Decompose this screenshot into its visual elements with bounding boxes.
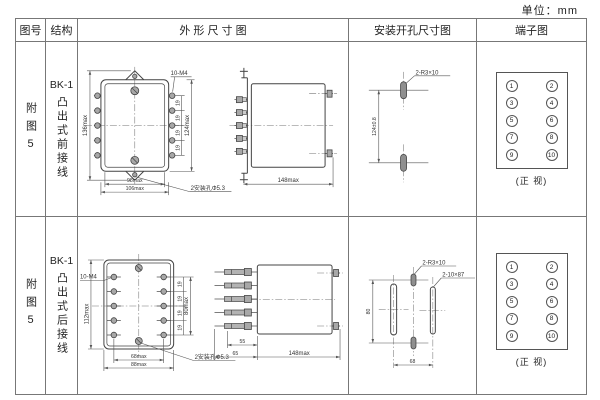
header-structure: 结构 [46, 19, 78, 42]
dim-mount-spacing-h-row2: 68 [410, 359, 416, 365]
terminal-4: 4 [546, 278, 558, 290]
header-fig: 图号 [16, 19, 46, 42]
terminal-7: 7 [506, 132, 518, 144]
terminal-left-column-row1: 1 3 5 7 9 [506, 80, 518, 161]
dim-pitch-2-row1: 19 [176, 115, 182, 121]
terminal-2: 2 [546, 80, 558, 92]
dim-depth-row2: 148max [289, 351, 310, 357]
terminal-7: 7 [506, 313, 518, 325]
structure-text-row2: 凸出式后接线 [54, 272, 70, 356]
dim-mount-spacing-v-row2: 80 [366, 308, 372, 314]
fig-no-row2: 附图5 [16, 217, 46, 394]
dim-height-terminals-row2: 80max [184, 297, 190, 315]
dim-width-inner-row2: 68max [131, 354, 147, 360]
fig-no-text-row2: 附图5 [23, 278, 39, 333]
front-view-row2: 112max 10-M4 [80, 254, 235, 371]
terminal-1: 1 [506, 261, 518, 273]
terminal-4: 4 [546, 97, 558, 109]
outline-drawing-row2: 112max 10-M4 [78, 217, 348, 394]
terminal-9: 9 [506, 149, 518, 161]
dim-mount-spacing-row1: 124±0.8 [372, 117, 378, 136]
outline-drawing-row1: 136max [78, 42, 348, 216]
terminal-left-column-row2: 1 3 5 7 9 [506, 261, 518, 342]
thread-label-row1: 10-M4 [171, 71, 189, 77]
side-view-row2: 55 65 148max [214, 265, 343, 360]
side-view-row1: 148max [229, 68, 337, 187]
terminal-right-column-row2: 2 4 6 8 10 [546, 261, 558, 342]
structure-row2: BK-1 凸出式后接线 [46, 217, 78, 394]
slot-note-row1: 2-R3×10 [415, 70, 439, 76]
terminal-9: 9 [506, 330, 518, 342]
fig-no-text-row1: 附图5 [23, 102, 39, 157]
model-label-row1: BK-1 [50, 79, 73, 91]
terminal-5: 5 [506, 115, 518, 127]
dim-width-outer-row1: 106max [126, 186, 145, 192]
dim-depth-row1: 148max [278, 178, 299, 184]
mounting-cell-row2: 80 68 2-R3×10 2-10×87 [349, 217, 477, 394]
dim-pitch-2-row2: 19 [178, 296, 184, 302]
terminal-3: 3 [506, 97, 518, 109]
dim-pitch-3-row2: 19 [178, 310, 184, 316]
terminal-cell-row1: 1 3 5 7 9 2 4 6 8 10 (正 视) [477, 42, 586, 217]
header-mounting: 安装开孔尺寸图 [349, 19, 477, 42]
outline-cell-row1: 136max [78, 42, 349, 217]
slot-note-large-row2: 2-10×87 [442, 272, 465, 278]
mounting-drawing-row2: 80 68 2-R3×10 2-10×87 [349, 217, 476, 394]
terminal-10: 10 [546, 149, 558, 161]
datasheet-page: 单位：mm 图号 结构 外 形 尺 寸 图 安装开孔尺寸图 端子图 附图5 BK… [0, 0, 600, 400]
terminal-box-row1: 1 3 5 7 9 2 4 6 8 10 [496, 72, 568, 169]
dim-pitch-1-row1: 19 [176, 100, 182, 106]
outline-cell-row2: 112max 10-M4 [78, 217, 349, 394]
dim-stud-length-row2: 55 [240, 339, 246, 345]
mounting-cell-row1: 124±0.8 2-R3×10 [349, 42, 477, 217]
dim-height-overall-row2: 112max [84, 304, 90, 325]
unit-label: 单位：mm [522, 2, 578, 18]
dim-pitch-1-row2: 19 [178, 281, 184, 287]
terminal-caption-row1: (正 视) [516, 174, 548, 187]
dim-pitch-4-row2: 19 [178, 325, 184, 331]
terminal-6: 6 [546, 115, 558, 127]
dim-pitch-4-row1: 19 [176, 145, 182, 151]
dim-pitch-3-row1: 19 [176, 130, 182, 136]
dimension-table: 图号 结构 外 形 尺 寸 图 安装开孔尺寸图 端子图 附图5 BK-1 凸出式… [15, 18, 587, 395]
terminal-right-column-row1: 2 4 6 8 10 [546, 80, 558, 161]
header-outline: 外 形 尺 寸 图 [78, 19, 349, 42]
terminal-2: 2 [546, 261, 558, 273]
front-view-row1: 136max [83, 67, 231, 195]
dim-flange-depth-row2: 65 [233, 351, 239, 357]
dim-height-terminals-row1: 124max [185, 115, 191, 136]
hole-note-row1: 2安装孔Φ5.3 [191, 184, 226, 192]
terminal-box-row2: 1 3 5 7 9 2 4 6 8 10 [496, 253, 568, 350]
structure-row1: BK-1 凸出式前接线 [46, 42, 78, 217]
structure-text-row1: 凸出式前接线 [54, 96, 70, 180]
terminal-6: 6 [546, 296, 558, 308]
dim-width-inner-row1: 98max [127, 178, 143, 184]
fig-no-row1: 附图5 [16, 42, 46, 217]
terminal-8: 8 [546, 313, 558, 325]
dim-width-outer-row2: 88max [131, 362, 147, 368]
terminal-5: 5 [506, 296, 518, 308]
slot-note-small-row2: 2-R3×10 [422, 260, 446, 266]
terminal-10: 10 [546, 330, 558, 342]
terminal-3: 3 [506, 278, 518, 290]
terminal-8: 8 [546, 132, 558, 144]
terminal-cell-row2: 1 3 5 7 9 2 4 6 8 10 (正 视) [477, 217, 586, 394]
header-terminal: 端子图 [477, 19, 586, 42]
terminal-1: 1 [506, 80, 518, 92]
terminal-caption-row2: (正 视) [516, 355, 548, 368]
model-label-row2: BK-1 [50, 255, 73, 267]
thread-label-row2: 10-M4 [80, 274, 98, 280]
mounting-drawing-row1: 124±0.8 2-R3×10 [349, 42, 476, 216]
